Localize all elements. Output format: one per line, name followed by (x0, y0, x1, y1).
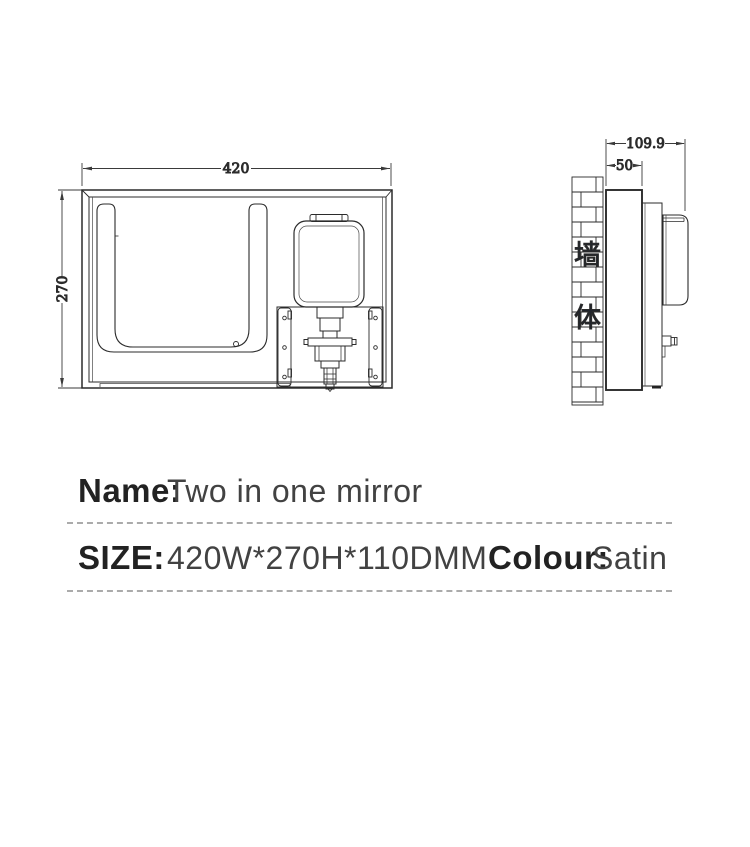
soap-bottle-inner (299, 226, 359, 302)
colour-value: Satin (592, 540, 667, 577)
divider-bottom (67, 590, 672, 592)
wall-hatch (572, 177, 603, 405)
front-view: 420 270 (55, 161, 392, 392)
divider-top (67, 522, 672, 524)
size-value: 420W*270H*110DMM (167, 540, 487, 577)
name-value: Two in one mirror (167, 473, 423, 510)
bracket-left (278, 308, 292, 386)
product-spec-sheet: 420 270 (0, 0, 750, 847)
colour-label: Colour: (488, 539, 609, 577)
soap-bottle (294, 221, 364, 307)
side-spout (662, 336, 677, 357)
frame-edge-lines (93, 197, 383, 382)
side-view: 墙 体 109.9 (572, 136, 688, 405)
channel-drain-hole (234, 342, 239, 347)
side-bottle-profile (663, 215, 688, 305)
wall-label-char-1: 墙 (574, 240, 601, 271)
dispenser-baseplate (277, 307, 383, 387)
wall-label-char-2: 体 (574, 303, 601, 334)
side-sensor-window (652, 386, 661, 389)
pump-assembly (304, 307, 356, 392)
side-main-body (606, 190, 642, 390)
front-width-dim-label: 420 (223, 161, 250, 177)
name-label: Name: (78, 472, 181, 510)
bottom-light-strip (100, 384, 290, 388)
mirror-inner-face (89, 197, 386, 382)
front-height-dim-label: 270 (55, 276, 71, 303)
technical-drawing: 420 270 (0, 0, 750, 460)
frame-corner-miters (82, 190, 392, 197)
side-depth-dim-label: 109.9 (626, 136, 665, 152)
name-row: Name: Two in one mirror (0, 472, 750, 512)
side-body-depth-dim-label: 50 (616, 158, 633, 174)
bracket-right (369, 308, 383, 386)
size-label: SIZE: (78, 539, 165, 577)
led-u-channel (97, 204, 267, 352)
size-colour-row: SIZE: 420W*270H*110DMM Colour: Satin (0, 539, 750, 579)
